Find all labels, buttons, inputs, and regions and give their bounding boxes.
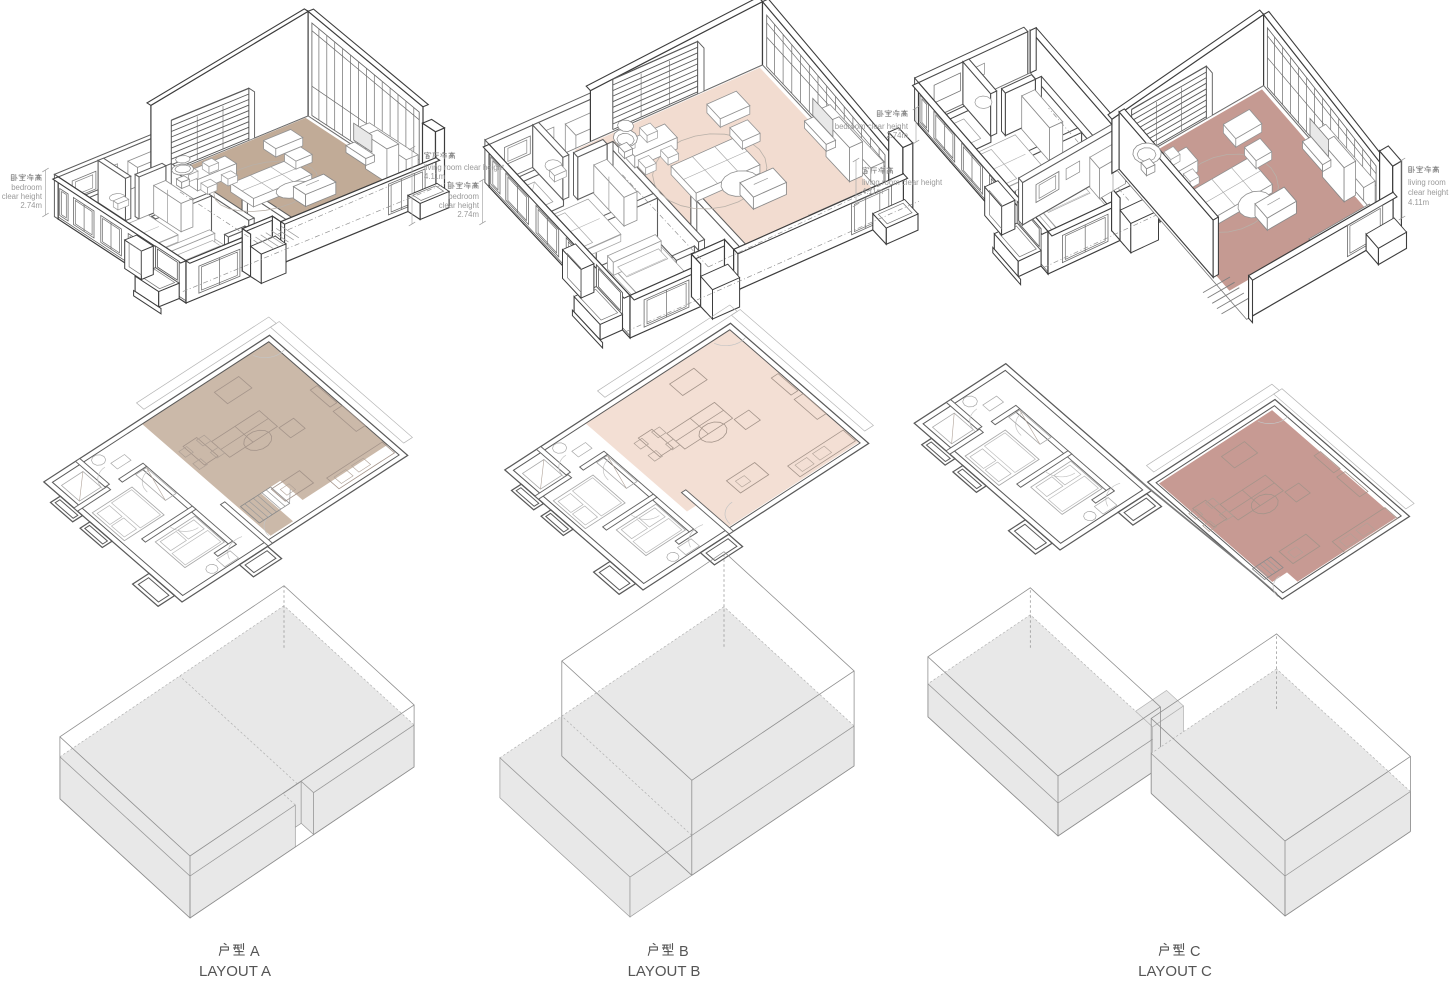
svg-text:2.74m: 2.74m [457, 210, 479, 219]
svg-text:living room: living room [1408, 178, 1446, 187]
svg-text:B: B [679, 944, 689, 960]
svg-text:LAYOUT B: LAYOUT B [628, 963, 701, 980]
svg-text:C: C [1190, 944, 1200, 960]
svg-text:4.11m: 4.11m [862, 187, 883, 196]
svg-text:clear height: clear height [439, 201, 480, 210]
svg-text:bedroom: bedroom [11, 183, 42, 192]
svg-text:clear height: clear height [1408, 188, 1449, 197]
svg-text:living room clear height: living room clear height [862, 178, 943, 187]
svg-text:bedroom clear height: bedroom clear height [835, 122, 909, 131]
svg-text:A: A [250, 944, 260, 960]
svg-text:living room clear height: living room clear height [424, 163, 505, 172]
svg-text:2.74m: 2.74m [886, 131, 908, 140]
svg-text:LAYOUT C: LAYOUT C [1138, 963, 1212, 980]
svg-text:2.74m: 2.74m [20, 201, 42, 210]
svg-text:bedroom: bedroom [448, 192, 479, 201]
svg-text:LAYOUT A: LAYOUT A [199, 963, 271, 980]
svg-text:4.11m: 4.11m [424, 172, 445, 181]
svg-text:clear height: clear height [2, 192, 43, 201]
svg-text:4.11m: 4.11m [1408, 198, 1429, 207]
